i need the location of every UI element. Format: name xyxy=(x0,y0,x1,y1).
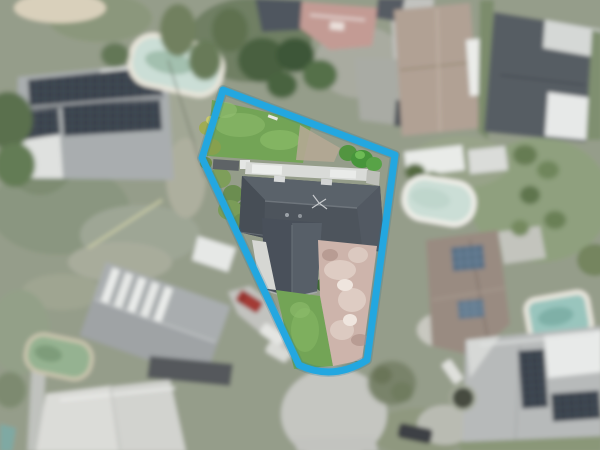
street-stub xyxy=(292,436,378,450)
trampoline xyxy=(451,386,475,410)
roof-vent xyxy=(321,179,332,186)
aerial-photo xyxy=(0,0,600,450)
solar-array-icon xyxy=(451,245,485,272)
solar-array-icon xyxy=(457,299,484,319)
neighbor-house-dark xyxy=(484,12,600,142)
solar-array-icon xyxy=(551,390,600,421)
street-tree xyxy=(368,361,416,405)
roof-vent xyxy=(274,176,285,183)
garden-shed xyxy=(213,159,240,171)
neighbor-house-bottom-right xyxy=(460,326,600,450)
aerial-photo-canvas xyxy=(0,0,600,450)
solar-array-icon xyxy=(62,100,162,136)
solar-array-icon xyxy=(518,349,548,409)
white-shed xyxy=(468,146,508,174)
